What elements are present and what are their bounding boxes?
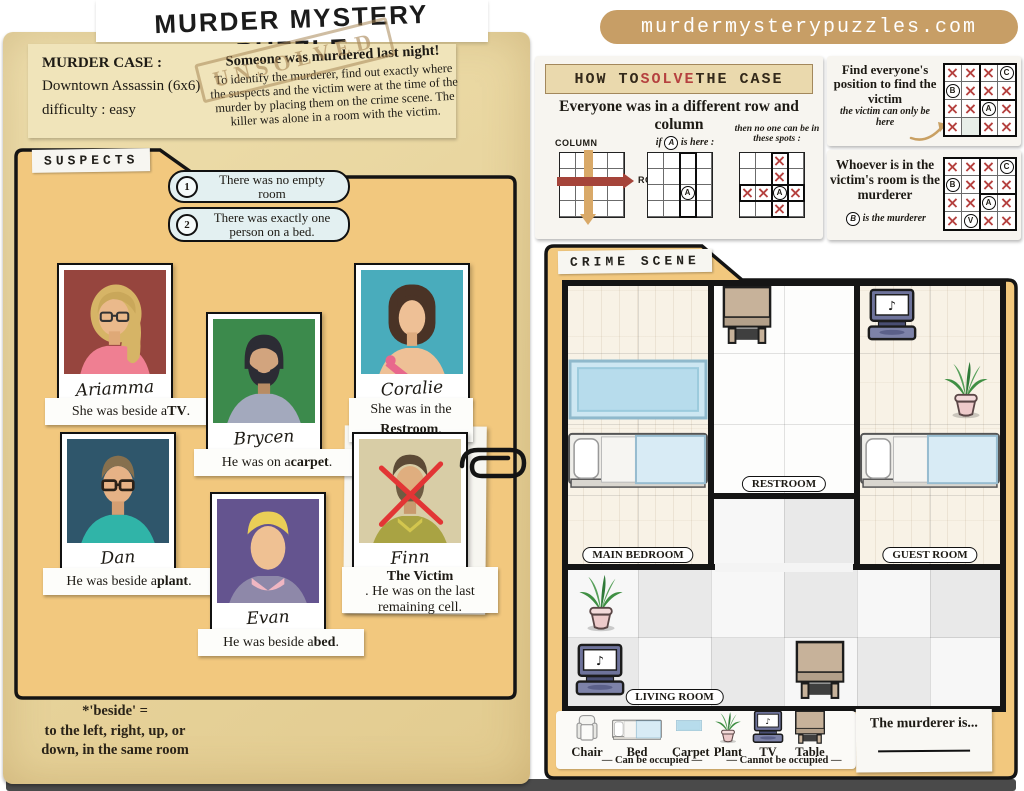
clue-part: She was beside a bbox=[72, 404, 167, 419]
clue-part: He was on a bbox=[222, 455, 291, 470]
legend-plant: Plant bbox=[710, 714, 746, 760]
crime-scene-map[interactable]: ♪♪MAIN BEDROOMRESTROOMGUEST ROOMLIVING R… bbox=[562, 280, 1006, 712]
furniture-carpet bbox=[568, 359, 708, 420]
page-title-paper: MURDER MYSTERY PUZZLE bbox=[96, 0, 488, 42]
x-mark: × bbox=[982, 159, 995, 175]
case-name: Downtown Assassin (6x6) bbox=[42, 75, 212, 98]
if-here-demo-grid: A bbox=[647, 152, 713, 218]
suspect-avatar-brycen bbox=[213, 319, 315, 423]
grid-cell: C bbox=[998, 64, 1016, 82]
room-floor bbox=[565, 283, 711, 567]
x-mark: × bbox=[946, 101, 959, 117]
grid-cell: × bbox=[944, 158, 962, 176]
grid-cell bbox=[696, 201, 712, 217]
legend-table: Table bbox=[790, 714, 830, 760]
cannot-be-occupied-label: — Cannot be occupied — bbox=[727, 755, 842, 766]
grid-cell: A bbox=[980, 100, 998, 118]
footnote-line: down, in the same room bbox=[15, 741, 215, 761]
grid-cell bbox=[680, 201, 696, 217]
grid-cell bbox=[608, 185, 624, 201]
clue-keyword: bed bbox=[314, 635, 336, 650]
x-mark: × bbox=[982, 83, 995, 99]
grid-cell: × bbox=[962, 64, 980, 82]
murderer-answer-box: The murderer is... bbox=[856, 706, 992, 773]
x-mark: × bbox=[982, 65, 995, 81]
grid-cell: × bbox=[944, 212, 962, 230]
letter-b-badge: B bbox=[946, 84, 960, 98]
x-mark: × bbox=[773, 169, 786, 185]
letter-c-badge: C bbox=[1000, 66, 1014, 80]
clue-keyword: TV bbox=[167, 404, 186, 419]
suspect-clue-brycen: He was on a carpet. bbox=[194, 449, 360, 476]
x-mark: × bbox=[1000, 83, 1013, 99]
letter-v-badge: V bbox=[964, 214, 978, 228]
clue-part: . bbox=[335, 635, 339, 650]
then-spots-demo-grid: ××××A×× bbox=[739, 152, 805, 218]
grid-cell: × bbox=[944, 194, 962, 212]
x-mark: × bbox=[964, 65, 977, 81]
grid-cell bbox=[756, 153, 772, 169]
grid-cell bbox=[648, 153, 664, 169]
murderer-rule-grid: ×××CB×××××A××V×× bbox=[943, 157, 1017, 231]
how-to-title: HOW TO SOLVE THE CASE bbox=[545, 64, 813, 94]
furniture-bed bbox=[567, 428, 709, 493]
caption-part: is here : bbox=[678, 137, 714, 148]
letter-a-badge: A bbox=[664, 136, 678, 150]
letter-a-badge: A bbox=[982, 102, 996, 116]
grid-cell: B bbox=[944, 82, 962, 100]
grid-cell: A bbox=[980, 194, 998, 212]
row-arrow-icon bbox=[557, 177, 623, 186]
if-here-caption: if A is here : bbox=[637, 136, 733, 150]
x-mark: × bbox=[964, 101, 977, 117]
chair-icon bbox=[570, 714, 604, 744]
clue-text: There was exactly one person on a bed. bbox=[204, 211, 340, 238]
grid-cell bbox=[592, 153, 608, 169]
suspect-photo-brycen[interactable]: Brycen bbox=[206, 312, 322, 455]
grid-cell: × bbox=[980, 118, 998, 136]
clue-keyword: The Victim bbox=[387, 569, 454, 584]
grid-cell bbox=[664, 185, 680, 201]
furniture-plant bbox=[939, 358, 993, 420]
paperclip-icon bbox=[452, 436, 530, 486]
grid-cell: × bbox=[962, 100, 980, 118]
x-mark: × bbox=[964, 195, 977, 211]
grid-cell: × bbox=[944, 118, 962, 136]
suspects-tab-label: SUSPECTS bbox=[32, 148, 151, 173]
room-label: RESTROOM bbox=[742, 476, 826, 492]
clue-number: 2 bbox=[176, 214, 198, 236]
table-icon bbox=[790, 714, 830, 744]
caption-part: if bbox=[656, 137, 665, 148]
clue-part: He was beside a bbox=[223, 635, 314, 650]
suspect-photo-finn-victim[interactable]: Finn bbox=[352, 432, 468, 575]
row-column-demo-grid bbox=[559, 152, 625, 218]
suspect-clue-dan: He was beside a plant. bbox=[43, 568, 215, 595]
clue-part: He was beside a bbox=[66, 574, 157, 589]
grid-cell: A bbox=[680, 185, 696, 201]
suspect-avatar-evan bbox=[217, 499, 319, 603]
grid-cell: × bbox=[962, 176, 980, 194]
letter-a-badge: A bbox=[982, 196, 996, 210]
grid-cell: × bbox=[962, 194, 980, 212]
suspect-avatar-dan bbox=[67, 439, 169, 543]
grid-cell bbox=[608, 153, 624, 169]
grid-cell bbox=[696, 169, 712, 185]
grid-cell bbox=[664, 153, 680, 169]
murderer-rule-title: Whoever is in the victim's room is the m… bbox=[829, 158, 941, 202]
x-mark: × bbox=[1000, 213, 1013, 229]
grid-cell: × bbox=[788, 185, 804, 201]
grid-cell bbox=[680, 169, 696, 185]
suspect-photo-dan[interactable]: Dan bbox=[60, 432, 176, 575]
title-part: HOW TO bbox=[574, 71, 640, 88]
grid-cell: × bbox=[998, 212, 1016, 230]
grid-cell: × bbox=[740, 185, 756, 201]
svg-text:♪: ♪ bbox=[888, 298, 896, 313]
caption-part: is the murderer bbox=[860, 213, 926, 224]
furniture-bed bbox=[859, 428, 1001, 493]
clue-keyword: carpet bbox=[291, 455, 329, 470]
suspect-clue-evan: He was beside a bed. bbox=[198, 629, 364, 656]
grid-cell: V bbox=[962, 212, 980, 230]
x-mark: × bbox=[741, 185, 754, 201]
letter-b-badge: B bbox=[946, 178, 960, 192]
footnote-line: to the left, right, up, or bbox=[15, 722, 215, 742]
x-mark: × bbox=[946, 119, 959, 135]
then-spots-caption: then no one can be in these spots : bbox=[731, 124, 823, 145]
tv-icon: ♪ bbox=[748, 714, 788, 744]
room-floor bbox=[711, 496, 857, 567]
grid-cell bbox=[664, 201, 680, 217]
clue-keyword: plant bbox=[157, 574, 188, 589]
svg-text:♪: ♪ bbox=[765, 717, 770, 726]
grid-cell: × bbox=[772, 169, 788, 185]
title-part: THE CASE bbox=[696, 71, 784, 88]
room-label: MAIN BEDROOM bbox=[582, 547, 693, 563]
grid-cell bbox=[788, 201, 804, 217]
grid-cell bbox=[680, 153, 696, 169]
site-banner-link[interactable]: murdermysterypuzzles.com bbox=[600, 10, 1018, 44]
footnote-line: *'beside' = bbox=[15, 702, 215, 722]
grid-cell bbox=[664, 169, 680, 185]
x-mark: × bbox=[946, 159, 959, 175]
x-mark: × bbox=[964, 83, 977, 99]
answer-line[interactable] bbox=[878, 750, 970, 753]
carpet-icon bbox=[672, 714, 706, 744]
suspect-photo-coralie[interactable]: Coralie bbox=[354, 263, 470, 406]
furniture-tv: ♪ bbox=[573, 643, 627, 697]
bed-icon bbox=[610, 714, 664, 744]
suspect-photo-evan[interactable]: Evan bbox=[210, 492, 326, 635]
x-mark: × bbox=[982, 177, 995, 193]
grid-cell: B bbox=[944, 176, 962, 194]
suspect-photo-ariamma[interactable]: Ariamma bbox=[57, 263, 173, 406]
x-mark: × bbox=[964, 159, 977, 175]
grid-cell bbox=[788, 153, 804, 169]
how-to-card: HOW TO SOLVE THE CASE Everyone was in a … bbox=[535, 56, 823, 239]
x-mark: × bbox=[1000, 195, 1013, 211]
grid-cell bbox=[696, 185, 712, 201]
case-difficulty: difficulty : easy bbox=[42, 99, 212, 122]
clue-part: . bbox=[188, 574, 192, 589]
can-be-occupied-label: — Can be occupied — bbox=[602, 755, 702, 766]
grid-cell: × bbox=[998, 100, 1016, 118]
furniture-tv: ♪ bbox=[865, 288, 919, 342]
x-mark: × bbox=[789, 185, 802, 201]
furniture-legend: ChairBedCarpetPlant♪TVTable — Can be occ… bbox=[556, 711, 856, 769]
legend-carpet: Carpet bbox=[672, 714, 706, 760]
x-mark: × bbox=[946, 65, 959, 81]
grid-cell bbox=[696, 153, 712, 169]
letter-a-badge: A bbox=[681, 186, 695, 200]
legend-label: Chair bbox=[570, 745, 604, 760]
legend-bed: Bed bbox=[610, 714, 664, 760]
crime-scene-tab-label: CRIME SCENE bbox=[558, 249, 712, 274]
clue-bubble-1: 1 There was no empty room bbox=[168, 170, 350, 203]
svg-text:♪: ♪ bbox=[596, 653, 604, 668]
grid-cell bbox=[560, 153, 576, 169]
grid-cell: × bbox=[980, 82, 998, 100]
letter-c-badge: C bbox=[1000, 160, 1014, 174]
grid-cell bbox=[592, 185, 608, 201]
x-mark: × bbox=[757, 185, 770, 201]
grid-cell bbox=[648, 185, 664, 201]
x-mark: × bbox=[1000, 177, 1013, 193]
clue-part: . bbox=[329, 455, 333, 470]
grid-cell: × bbox=[998, 82, 1016, 100]
find-victim-title: Find everyone's position to find the vic… bbox=[831, 63, 939, 106]
room-label: LIVING ROOM bbox=[625, 689, 724, 705]
title-accent: SOLVE bbox=[640, 71, 695, 88]
find-victim-grid: ×××CB×××××A×××× bbox=[943, 63, 1017, 137]
room-floor bbox=[565, 567, 1003, 709]
x-mark: × bbox=[1000, 101, 1013, 117]
grid-cell: × bbox=[962, 158, 980, 176]
clue-number: 1 bbox=[176, 176, 198, 198]
x-mark: × bbox=[1000, 119, 1013, 135]
grid-cell bbox=[560, 201, 576, 217]
furniture-plant bbox=[574, 571, 628, 633]
x-mark: × bbox=[982, 213, 995, 229]
column-label: COLUMN bbox=[555, 138, 598, 148]
find-victim-card: Find everyone's position to find the vic… bbox=[827, 56, 1021, 146]
clue-part: She was in the bbox=[370, 402, 451, 417]
clue-bubble-2: 2 There was exactly one person on a bed. bbox=[168, 207, 350, 242]
beside-footnote: *'beside' = to the left, right, up, or d… bbox=[15, 702, 215, 761]
grid-cell: × bbox=[980, 158, 998, 176]
letter-b-badge: B bbox=[846, 212, 860, 226]
grid-cell: × bbox=[772, 201, 788, 217]
grid-cell bbox=[608, 201, 624, 217]
grid-cell bbox=[648, 169, 664, 185]
suspect-clue-finn: The Victim. He was on the last remaining… bbox=[342, 567, 498, 613]
furniture-table bbox=[721, 285, 773, 345]
legend-chair: Chair bbox=[570, 714, 604, 760]
grid-cell: × bbox=[998, 194, 1016, 212]
grid-cell: × bbox=[962, 82, 980, 100]
grid-cell bbox=[756, 201, 772, 217]
letter-a-badge: A bbox=[773, 186, 787, 200]
furniture-table bbox=[794, 640, 846, 700]
grid-cell bbox=[648, 201, 664, 217]
x-mark: × bbox=[946, 213, 959, 229]
grid-cell: × bbox=[980, 64, 998, 82]
clue-part: . bbox=[187, 404, 191, 419]
murder-mystery-puzzle-page: MURDER MYSTERY PUZZLE MURDER CASE : Down… bbox=[0, 0, 1024, 791]
x-mark: × bbox=[964, 177, 977, 193]
grid-cell: × bbox=[944, 100, 962, 118]
suspect-avatar-coralie bbox=[361, 270, 463, 374]
x-mark: × bbox=[946, 195, 959, 211]
grid-cell bbox=[962, 118, 980, 136]
suspect-avatar-ariamma bbox=[64, 270, 166, 374]
suspect-clue-ariamma: She was beside a TV. bbox=[45, 398, 217, 425]
case-label: MURDER CASE : bbox=[42, 52, 212, 75]
grid-cell: × bbox=[998, 176, 1016, 194]
x-mark: × bbox=[773, 201, 786, 217]
grid-cell bbox=[560, 185, 576, 201]
clue-text: There was no empty room bbox=[204, 173, 340, 200]
murderer-rule-card: Whoever is in the victim's room is the m… bbox=[827, 150, 1021, 240]
grid-cell: × bbox=[980, 176, 998, 194]
x-mark: × bbox=[982, 119, 995, 135]
grid-cell bbox=[740, 201, 756, 217]
suspect-avatar-finn bbox=[359, 439, 461, 543]
room-label: GUEST ROOM bbox=[882, 547, 977, 563]
grid-cell: × bbox=[980, 212, 998, 230]
grid-cell bbox=[740, 153, 756, 169]
grid-cell: × bbox=[756, 185, 772, 201]
clue-part: . He was on the last remaining cell. bbox=[346, 584, 494, 615]
legend-tv: ♪TV bbox=[748, 714, 788, 760]
murderer-note: B is the murderer bbox=[833, 212, 939, 226]
murderer-prompt: The murderer is... bbox=[856, 716, 992, 733]
grid-cell: × bbox=[944, 64, 962, 82]
grid-cell: × bbox=[998, 118, 1016, 136]
grid-cell: C bbox=[998, 158, 1016, 176]
plant-icon bbox=[710, 714, 746, 744]
